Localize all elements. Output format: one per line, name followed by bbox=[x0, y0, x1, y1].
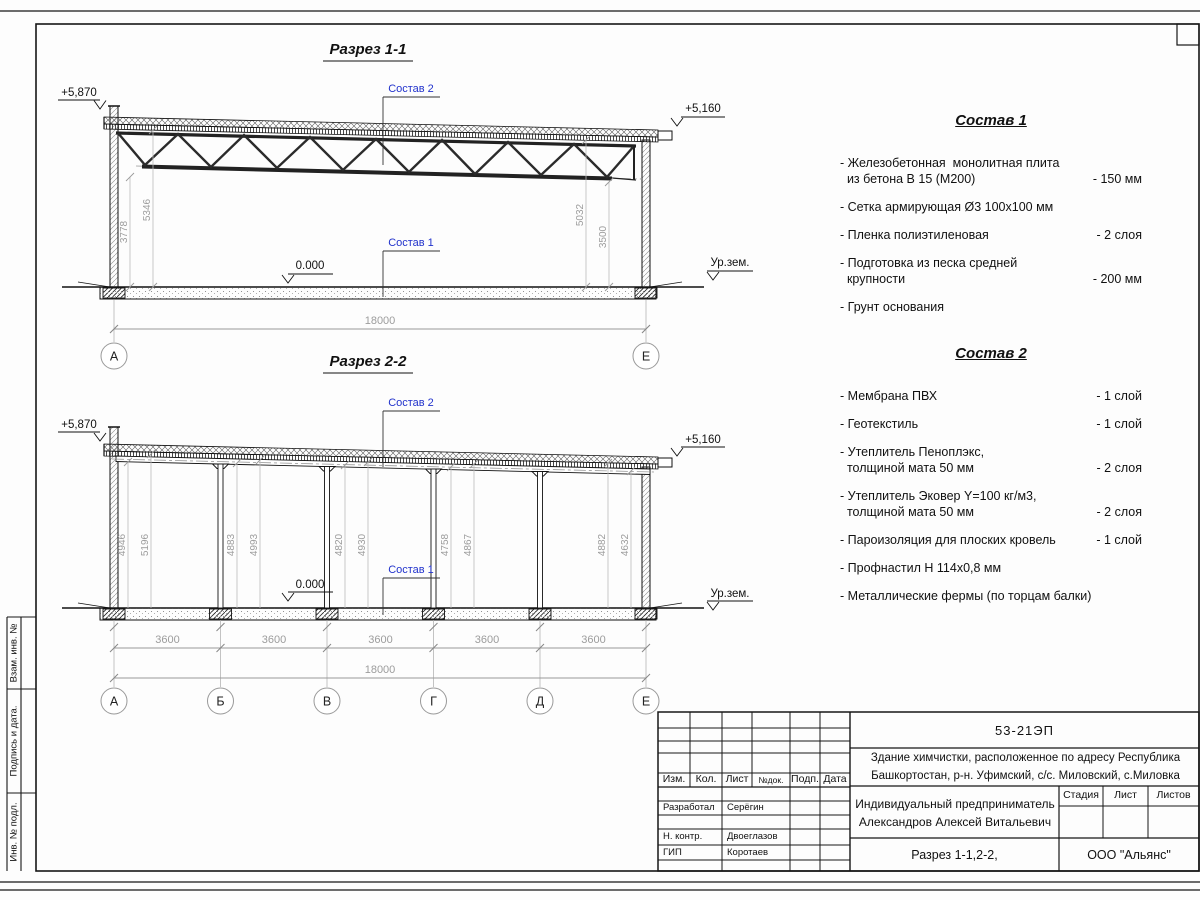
dim-4883: 4883 bbox=[226, 533, 237, 556]
item-text: - Железобетонная монолитная плита из бет… bbox=[840, 155, 1059, 187]
axis-markers: А Б В Г Д Е bbox=[101, 688, 659, 714]
role-gip: ГИП bbox=[660, 845, 721, 859]
list-item: - Пароизоляция для плоских кровель - 1 с… bbox=[840, 532, 1142, 548]
role-razrabotal: Разработал bbox=[660, 801, 721, 814]
dim-5346: 5346 bbox=[142, 198, 153, 221]
list-item: - Мембрана ПВХ - 1 слой bbox=[840, 388, 1142, 404]
list-item: - Грунт основания bbox=[840, 299, 1142, 315]
elev-right: +5,160 bbox=[685, 103, 721, 115]
elevation-arrow-icon bbox=[707, 602, 719, 610]
elev-zero: 0.000 bbox=[296, 579, 325, 591]
span-dim: 3600 bbox=[368, 634, 392, 646]
dim-3500: 3500 bbox=[598, 225, 609, 248]
list-item: - Подготовка из песка средней крупности … bbox=[840, 255, 1142, 287]
dim-4820: 4820 bbox=[334, 533, 345, 556]
span-dim: 3600 bbox=[475, 634, 499, 646]
list-item: - Утеплитель Эковер Y=100 кг/м3, толщино… bbox=[840, 488, 1142, 520]
sheet-title: Разрез 1-1,2-2, bbox=[851, 840, 1058, 870]
callouts: Состав 2 Состав 1 bbox=[383, 83, 440, 297]
item-value: - 2 слоя bbox=[1089, 460, 1142, 476]
item-text: - Грунт основания bbox=[840, 299, 944, 315]
dim-total: 18000 bbox=[365, 664, 396, 676]
dim-4632: 4632 bbox=[620, 533, 631, 556]
list-item: - Металлические фермы (по торцам балки) bbox=[840, 588, 1142, 604]
item-value: - 200 мм bbox=[1085, 271, 1142, 287]
list-item: - Пленка полиэтиленовая - 2 слоя bbox=[840, 227, 1142, 243]
elevation-arrow-icon bbox=[282, 593, 294, 601]
item-text: - Профнастил Н 114х0,8 мм bbox=[840, 560, 1001, 576]
dim-4930: 4930 bbox=[357, 533, 368, 556]
axis-d: Д bbox=[536, 695, 545, 709]
foundation-pad bbox=[529, 609, 551, 619]
ground-label: Ур.зем. bbox=[710, 588, 749, 600]
elevation-arrow-icon bbox=[707, 272, 719, 280]
axis-v: В bbox=[323, 695, 331, 709]
item-value: - 1 слой bbox=[1088, 416, 1142, 432]
col-list2: Лист bbox=[723, 774, 751, 786]
item-text: - Утеплитель Эковер Y=100 кг/м3, толщино… bbox=[840, 488, 1036, 520]
section-1-1: Разрез 1-1 bbox=[58, 41, 753, 369]
callout-sostav2: Состав 2 bbox=[388, 83, 434, 95]
column bbox=[431, 469, 436, 608]
list-item: - Геотекстиль - 1 слой bbox=[840, 416, 1142, 432]
callout-sostav1: Состав 1 bbox=[388, 237, 434, 249]
span-dim: 3600 bbox=[155, 634, 179, 646]
name-seregin: Серёгин bbox=[724, 801, 788, 814]
foundation-pad bbox=[423, 609, 445, 619]
col-izm: Изм. bbox=[659, 774, 689, 786]
horizontal-dimensions: 3600 3600 3600 3600 3600 18000 bbox=[110, 620, 650, 687]
list-item: - Сетка армирующая Ø3 100х100 мм bbox=[840, 199, 1142, 215]
elevation-arrow-icon bbox=[94, 101, 106, 110]
axis-e: Е bbox=[642, 695, 650, 709]
sostav1-title: Состав 1 bbox=[840, 112, 1142, 129]
elevation-arrow-icon bbox=[671, 448, 683, 456]
col-data: Дата bbox=[821, 774, 849, 786]
dim-4882: 4882 bbox=[597, 533, 608, 556]
elevation-arrow-icon bbox=[94, 433, 106, 441]
item-text: - Мембрана ПВХ bbox=[840, 388, 937, 404]
dim-total: 18000 bbox=[365, 315, 396, 327]
elev-right: +5,160 bbox=[685, 434, 721, 446]
axis-b: Б bbox=[216, 695, 224, 709]
callout-sostav2: Состав 2 bbox=[388, 397, 434, 409]
floor-slab bbox=[100, 287, 657, 299]
role-nkontr: Н. контр. bbox=[660, 829, 721, 844]
company: ООО "Альянс" bbox=[1060, 840, 1198, 870]
list-item: - Железобетонная монолитная плита из бет… bbox=[840, 155, 1142, 187]
col-kol: Кол. bbox=[691, 774, 721, 786]
horizontal-dimension: 18000 bbox=[110, 300, 650, 342]
column bbox=[538, 472, 543, 609]
dim-4993: 4993 bbox=[249, 533, 260, 556]
item-value: - 1 слой bbox=[1088, 532, 1142, 548]
span-dim: 3600 bbox=[581, 634, 605, 646]
dim-3778: 3778 bbox=[119, 220, 130, 243]
side-stamp-inv: Инв. № подл. bbox=[9, 802, 20, 861]
item-text: - Пароизоляция для плоских кровель bbox=[840, 532, 1056, 548]
columns bbox=[213, 464, 549, 608]
foundation-pad bbox=[103, 609, 125, 619]
dim-4758: 4758 bbox=[440, 533, 451, 556]
item-text: - Подготовка из песка средней крупности bbox=[840, 255, 1017, 287]
roof-end-piece bbox=[658, 458, 672, 467]
ground-label: Ур.зем. bbox=[710, 257, 749, 269]
axis-a: А bbox=[110, 695, 119, 709]
elev-left: +5,870 bbox=[61, 419, 97, 431]
dim-5196: 5196 bbox=[140, 533, 151, 556]
name-dvoeglazov: Двоеглазов bbox=[724, 829, 788, 844]
foundation-pad bbox=[635, 288, 657, 298]
item-text: - Утеплитель Пеноплэкс, толщиной мата 50… bbox=[840, 444, 984, 476]
client: Индивидуальный предприниматель Александр… bbox=[852, 788, 1058, 837]
foundation-pad bbox=[210, 609, 232, 619]
col-list: Лист bbox=[1104, 787, 1147, 805]
item-text: - Геотекстиль bbox=[840, 416, 918, 432]
item-value: - 150 мм bbox=[1085, 171, 1142, 187]
corner-stamp-box bbox=[1177, 24, 1199, 45]
elev-zero: 0.000 bbox=[296, 260, 325, 272]
list-item: - Утеплитель Пеноплэкс, толщиной мата 50… bbox=[840, 444, 1142, 476]
foundation-pad bbox=[635, 609, 657, 619]
col-listov: Листов bbox=[1149, 787, 1198, 805]
roof-end-piece bbox=[658, 131, 672, 140]
truss-bottom-chord bbox=[142, 167, 612, 179]
column bbox=[325, 467, 330, 609]
item-text: - Сетка армирующая Ø3 100х100 мм bbox=[840, 199, 1053, 215]
side-stamp-podpis: Подпись и дата. bbox=[9, 706, 20, 777]
sostav2-title: Состав 2 bbox=[840, 345, 1142, 362]
section-2-2: Разрез 2-2 bbox=[58, 353, 753, 714]
section2-title: Разрез 2-2 bbox=[329, 353, 407, 370]
foundation-pad bbox=[316, 609, 338, 619]
object-description: Здание химчистки, расположенное по адрес… bbox=[853, 750, 1198, 785]
elevation-arrow-icon bbox=[671, 118, 683, 126]
callout-sostav1: Состав 1 bbox=[388, 564, 434, 576]
elevation-arrow-icon bbox=[282, 275, 294, 283]
col-ndok: №док. bbox=[753, 774, 789, 786]
axis-g: Г bbox=[430, 695, 437, 709]
col-stadiya: Стадия bbox=[1060, 787, 1102, 805]
span-dim: 3600 bbox=[262, 634, 286, 646]
vertical-dimensions: 4946 5196 4883 4993 4820 4930 4758 4867 … bbox=[117, 450, 635, 608]
side-stamp-vzam: Взам. инв. № bbox=[9, 624, 20, 683]
item-text: - Пленка полиэтиленовая bbox=[840, 227, 989, 243]
list-item: - Профнастил Н 114х0,8 мм bbox=[840, 560, 1142, 576]
axis-a: А bbox=[110, 350, 119, 364]
dim-5032: 5032 bbox=[575, 203, 586, 226]
axis-e: Е bbox=[642, 350, 650, 364]
drawing-sheet: { "section1": { "title": "Разрез 1-1", "… bbox=[0, 0, 1200, 900]
roof bbox=[104, 444, 672, 475]
item-text: - Металлические фермы (по торцам балки) bbox=[840, 588, 1091, 604]
section1-title: Разрез 1-1 bbox=[329, 41, 406, 58]
dim-4946: 4946 bbox=[117, 533, 128, 556]
composition-panel: Состав 1 - Железобетонная монолитная пли… bbox=[840, 112, 1142, 616]
floor-slab bbox=[100, 608, 657, 620]
col-podp: Подп. bbox=[791, 774, 819, 786]
elev-left: +5,870 bbox=[61, 87, 97, 99]
column bbox=[218, 464, 223, 608]
item-value: - 1 слой bbox=[1088, 388, 1142, 404]
item-value: - 2 слоя bbox=[1089, 227, 1142, 243]
name-korotaev: Коротаев bbox=[724, 845, 788, 859]
doc-number: 53-21ЭП bbox=[851, 714, 1198, 747]
dim-4867: 4867 bbox=[463, 533, 474, 556]
item-value: - 2 слоя bbox=[1089, 504, 1142, 520]
foundation-pad bbox=[103, 288, 125, 298]
